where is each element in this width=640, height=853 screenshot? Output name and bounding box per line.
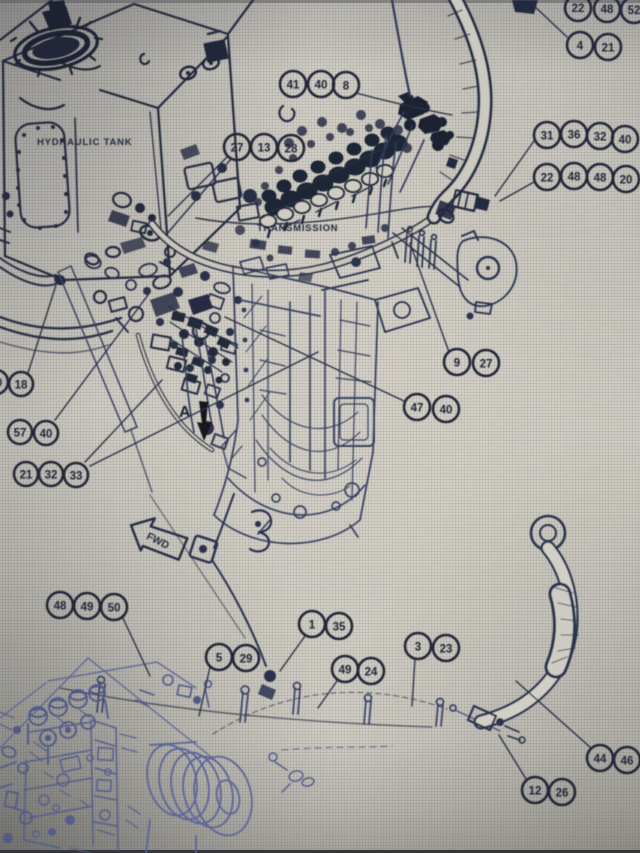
svg-text:48: 48 [601, 4, 614, 16]
svg-text:22: 22 [572, 3, 585, 15]
svg-text:40: 40 [440, 405, 453, 417]
svg-text:20: 20 [620, 175, 633, 187]
svg-text:47: 47 [411, 403, 424, 415]
svg-text:48: 48 [54, 601, 67, 613]
svg-text:1: 1 [309, 620, 316, 632]
svg-text:4: 4 [577, 41, 584, 53]
svg-text:23: 23 [440, 644, 453, 656]
svg-text:40: 40 [619, 135, 632, 147]
svg-text:33: 33 [70, 471, 83, 483]
svg-text:28: 28 [285, 144, 298, 156]
svg-text:32: 32 [45, 470, 58, 482]
svg-text:29: 29 [240, 654, 253, 666]
svg-text:48: 48 [568, 172, 581, 184]
svg-text:9: 9 [454, 358, 460, 370]
svg-text:3: 3 [415, 642, 421, 654]
svg-text:HYDRAULIC TANK: HYDRAULIC TANK [37, 137, 132, 148]
svg-text:35: 35 [333, 622, 346, 634]
svg-text:46: 46 [621, 756, 634, 768]
svg-text:49: 49 [339, 665, 352, 677]
svg-text:18: 18 [15, 380, 28, 392]
svg-text:21: 21 [20, 470, 33, 482]
svg-text:24: 24 [365, 667, 378, 679]
svg-text:49: 49 [81, 602, 94, 614]
svg-text:12: 12 [529, 786, 542, 798]
svg-text:48: 48 [594, 173, 607, 185]
svg-text:13: 13 [258, 143, 271, 155]
svg-text:31: 31 [541, 131, 554, 143]
svg-text:21: 21 [602, 43, 615, 55]
svg-text:57: 57 [14, 428, 27, 440]
svg-text:26: 26 [556, 788, 569, 800]
svg-text:27: 27 [480, 359, 493, 371]
svg-text:32: 32 [594, 132, 607, 144]
svg-text:22: 22 [541, 173, 554, 185]
svg-text:36: 36 [568, 130, 581, 142]
svg-text:40: 40 [40, 429, 53, 441]
svg-text:40: 40 [315, 80, 328, 92]
svg-text:41: 41 [287, 80, 300, 92]
svg-text:8: 8 [343, 81, 350, 93]
svg-text:27: 27 [231, 143, 244, 155]
svg-text:0: 0 [0, 378, 2, 390]
svg-text:50: 50 [108, 603, 121, 615]
svg-text:44: 44 [594, 754, 607, 766]
svg-text:52: 52 [628, 5, 640, 17]
svg-text:5: 5 [216, 653, 223, 665]
